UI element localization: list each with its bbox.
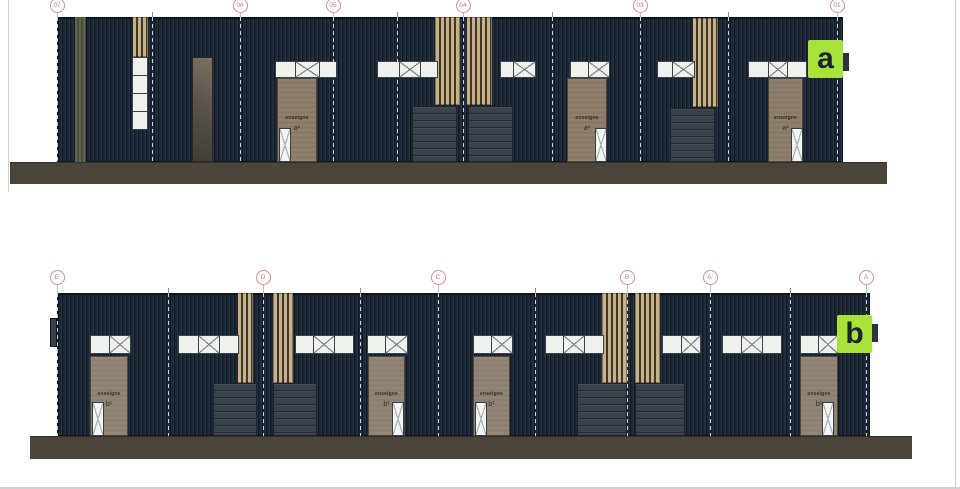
grid-marker-circle: A <box>859 270 874 285</box>
window-pane-opening-symbol <box>673 62 694 77</box>
elevation-drawing-canvas: enseignea¹enseignea¹enseignea¹0706050403… <box>0 0 960 489</box>
sign-text: enseigne <box>278 115 316 121</box>
garage-door <box>273 383 317 436</box>
wood-slat-panel <box>602 293 627 383</box>
ground-bar <box>10 162 887 184</box>
window-band <box>657 61 695 78</box>
grid-dashed-line <box>837 17 838 162</box>
window-band <box>662 335 701 354</box>
window-pane-opening-symbol <box>589 62 609 77</box>
grid-marker-leader <box>710 284 711 293</box>
grid-marker-leader <box>333 12 334 17</box>
grid-tick <box>728 12 729 17</box>
wood-slat-panel <box>692 18 718 107</box>
elevation-badge-tab <box>843 53 849 71</box>
window-pane <box>546 336 563 353</box>
window-pane <box>220 336 238 353</box>
window-pane <box>571 62 588 77</box>
grid-dashed-line <box>463 17 464 162</box>
grid-tick <box>168 288 169 293</box>
grid-dashed-line <box>57 293 58 436</box>
grid-marker-leader <box>263 284 264 293</box>
grid-dashed-line <box>728 17 729 162</box>
elevation-badge-b: b <box>837 315 872 353</box>
dark-shaded-panel <box>192 57 213 162</box>
grid-marker-leader <box>627 284 628 293</box>
window-pane-opening-symbol <box>742 336 762 353</box>
elevation-badge-tab <box>872 324 878 342</box>
garage-door <box>412 106 457 162</box>
window-pane <box>801 336 818 353</box>
grid-dashed-line <box>57 17 58 162</box>
window-pane <box>585 336 603 353</box>
wood-slat-panel <box>466 17 492 105</box>
window-pane-opening-symbol <box>199 336 219 353</box>
window-band <box>570 61 610 78</box>
garage-door <box>577 383 627 436</box>
grid-dashed-line <box>627 293 628 436</box>
sign-text: enseigne <box>568 115 606 121</box>
gray-cladding-stripe <box>75 17 86 162</box>
grid-dashed-line <box>152 17 153 162</box>
grid-tick <box>152 12 153 17</box>
wood-slat-panel <box>635 293 660 383</box>
facade-side-tab <box>50 318 57 347</box>
window-pane <box>133 76 147 93</box>
grid-marker-label: E <box>55 274 59 281</box>
window-pane <box>133 94 147 111</box>
elevation-badge-letter: b <box>845 319 863 349</box>
window-band <box>500 61 536 78</box>
grid-dashed-line <box>240 17 241 162</box>
garage-door <box>213 383 257 436</box>
grid-tick <box>397 12 398 17</box>
grid-dashed-line <box>438 293 439 436</box>
window-pane-opening-symbol <box>492 336 512 353</box>
grid-marker-circle: 06 <box>233 0 248 13</box>
window-pane-opening-symbol <box>769 62 787 77</box>
window-pane-opening-symbol <box>819 336 837 353</box>
grid-marker-leader <box>438 284 439 293</box>
entrance-door <box>92 402 104 436</box>
window-pane <box>133 58 147 75</box>
window-band <box>275 61 337 78</box>
grid-dashed-line <box>710 293 711 436</box>
stacked-window-strip <box>132 57 148 130</box>
sign-text: enseigne <box>474 391 509 397</box>
wood-slat-panel <box>132 17 148 57</box>
grid-marker-label: B <box>625 274 629 281</box>
window-pane-opening-symbol <box>682 336 700 353</box>
grid-marker-label: 07 <box>53 2 60 9</box>
sign-text: enseigne <box>369 391 404 397</box>
window-band <box>295 335 354 354</box>
window-band <box>367 335 408 354</box>
grid-marker-leader <box>463 12 464 17</box>
elevation-badge-letter: a <box>817 44 834 74</box>
grid-marker-circle: 01 <box>830 0 845 13</box>
sign-text: enseigne <box>91 391 127 397</box>
entrance-door <box>279 128 291 162</box>
grid-marker-label: A' <box>707 274 713 281</box>
grid-dashed-line <box>535 293 536 436</box>
window-pane <box>474 336 491 353</box>
grid-marker-leader <box>240 12 241 17</box>
window-pane <box>749 62 768 77</box>
window-pane <box>763 336 781 353</box>
grid-marker-label: D <box>261 274 266 281</box>
window-band <box>748 61 807 78</box>
window-pane <box>378 62 399 77</box>
grid-tick <box>535 288 536 293</box>
window-pane <box>421 62 437 77</box>
sign-text: enseigne <box>769 115 802 121</box>
grid-tick <box>552 12 553 17</box>
window-pane <box>663 336 681 353</box>
window-pane <box>658 62 672 77</box>
garage-door <box>670 108 715 162</box>
garage-door <box>635 383 685 436</box>
garage-door <box>468 106 513 162</box>
grid-marker-label: 05 <box>329 2 336 9</box>
grid-marker-circle: D <box>256 270 271 285</box>
grid-marker-label: A <box>864 274 868 281</box>
wood-slat-panel <box>273 293 293 383</box>
wood-slat-panel <box>435 17 460 105</box>
sign-text: enseigne <box>801 391 837 397</box>
entrance-door <box>595 128 607 162</box>
grid-marker-leader <box>837 12 838 17</box>
window-pane-opening-symbol <box>110 336 130 353</box>
grid-marker-circle: 03 <box>633 0 648 13</box>
grid-dashed-line <box>640 17 641 162</box>
grid-marker-label: 04 <box>459 2 466 9</box>
window-pane-opening-symbol <box>400 62 420 77</box>
ground-bar <box>30 436 912 459</box>
window-pane <box>296 336 313 353</box>
grid-marker-leader <box>640 12 641 17</box>
window-band <box>473 335 513 354</box>
window-pane-opening-symbol <box>314 336 334 353</box>
elevation-badge-a: a <box>808 40 843 78</box>
grid-marker-leader <box>866 284 867 293</box>
grid-tick <box>360 288 361 293</box>
grid-marker-label: 03 <box>636 2 643 9</box>
window-band <box>545 335 604 354</box>
grid-dashed-line <box>397 17 398 162</box>
window-pane <box>501 62 513 77</box>
window-pane <box>368 336 385 353</box>
window-pane <box>276 62 295 77</box>
grid-marker-label: C <box>436 274 441 281</box>
grid-dashed-line <box>360 293 361 436</box>
window-band <box>178 335 239 354</box>
grid-marker-circle: 07 <box>50 0 65 13</box>
window-pane-opening-symbol <box>514 62 535 77</box>
grid-dashed-line <box>263 293 264 436</box>
page-border-line <box>955 0 956 489</box>
window-band <box>377 61 438 78</box>
window-pane-opening-symbol <box>296 62 319 77</box>
grid-marker-leader <box>57 12 58 17</box>
entrance-door <box>791 128 803 162</box>
window-pane <box>335 336 353 353</box>
elevation-b-facade <box>57 293 870 436</box>
entrance-door <box>822 402 834 436</box>
grid-marker-circle: A' <box>703 270 718 285</box>
entrance-door <box>475 402 487 436</box>
grid-marker-circle: 05 <box>326 0 341 13</box>
window-pane <box>179 336 198 353</box>
window-pane <box>133 112 147 129</box>
grid-marker-label: 01 <box>833 2 840 9</box>
window-band <box>722 335 782 354</box>
entrance-door <box>392 402 404 436</box>
window-pane-opening-symbol <box>564 336 584 353</box>
grid-dashed-line <box>552 17 553 162</box>
wood-slat-panel <box>237 293 253 383</box>
grid-marker-circle: E <box>50 270 65 285</box>
grid-marker-circle: C <box>431 270 446 285</box>
window-pane <box>723 336 741 353</box>
window-pane <box>91 336 109 353</box>
grid-marker-leader <box>57 284 58 293</box>
grid-dashed-line <box>333 17 334 162</box>
grid-tick <box>790 288 791 293</box>
window-pane <box>788 62 806 77</box>
page-border-line <box>8 0 9 192</box>
window-pane-opening-symbol <box>386 336 407 353</box>
grid-dashed-line <box>790 293 791 436</box>
grid-marker-circle: B <box>620 270 635 285</box>
grid-marker-circle: 04 <box>456 0 471 13</box>
window-band <box>800 335 838 354</box>
grid-marker-label: 06 <box>236 2 243 9</box>
grid-dashed-line <box>168 293 169 436</box>
window-band <box>90 335 131 354</box>
